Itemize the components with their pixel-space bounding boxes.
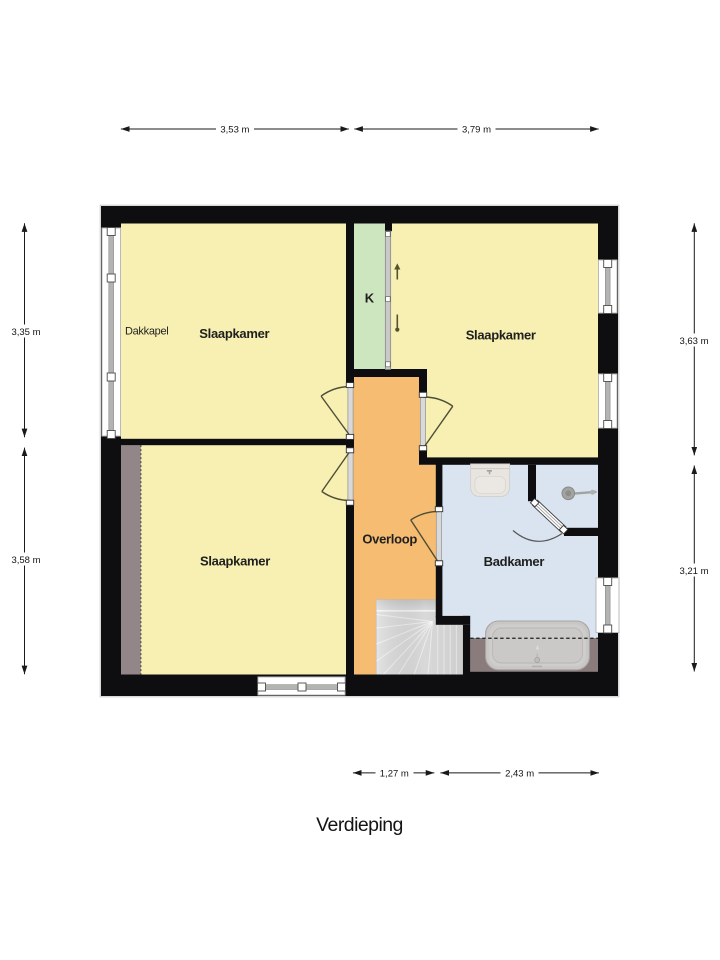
svg-text:Overloop: Overloop	[362, 532, 417, 547]
svg-text:3,53 m: 3,53 m	[220, 124, 249, 135]
svg-text:Badkamer: Badkamer	[484, 554, 545, 569]
svg-text:K: K	[365, 291, 375, 306]
svg-text:3,79 m: 3,79 m	[462, 124, 491, 135]
svg-text:Dakkapel: Dakkapel	[125, 326, 168, 338]
svg-text:3,63 m: 3,63 m	[679, 336, 708, 347]
svg-text:3,35 m: 3,35 m	[11, 327, 40, 338]
svg-text:Verdieping: Verdieping	[316, 814, 403, 836]
svg-text:3,21 m: 3,21 m	[679, 566, 708, 577]
svg-text:Slaapkamer: Slaapkamer	[466, 328, 536, 343]
svg-text:3,58 m: 3,58 m	[11, 555, 40, 566]
svg-text:1,27 m: 1,27 m	[380, 768, 409, 779]
svg-text:Slaapkamer: Slaapkamer	[199, 326, 269, 341]
svg-text:Slaapkamer: Slaapkamer	[200, 554, 270, 569]
svg-text:2,43 m: 2,43 m	[505, 768, 534, 779]
